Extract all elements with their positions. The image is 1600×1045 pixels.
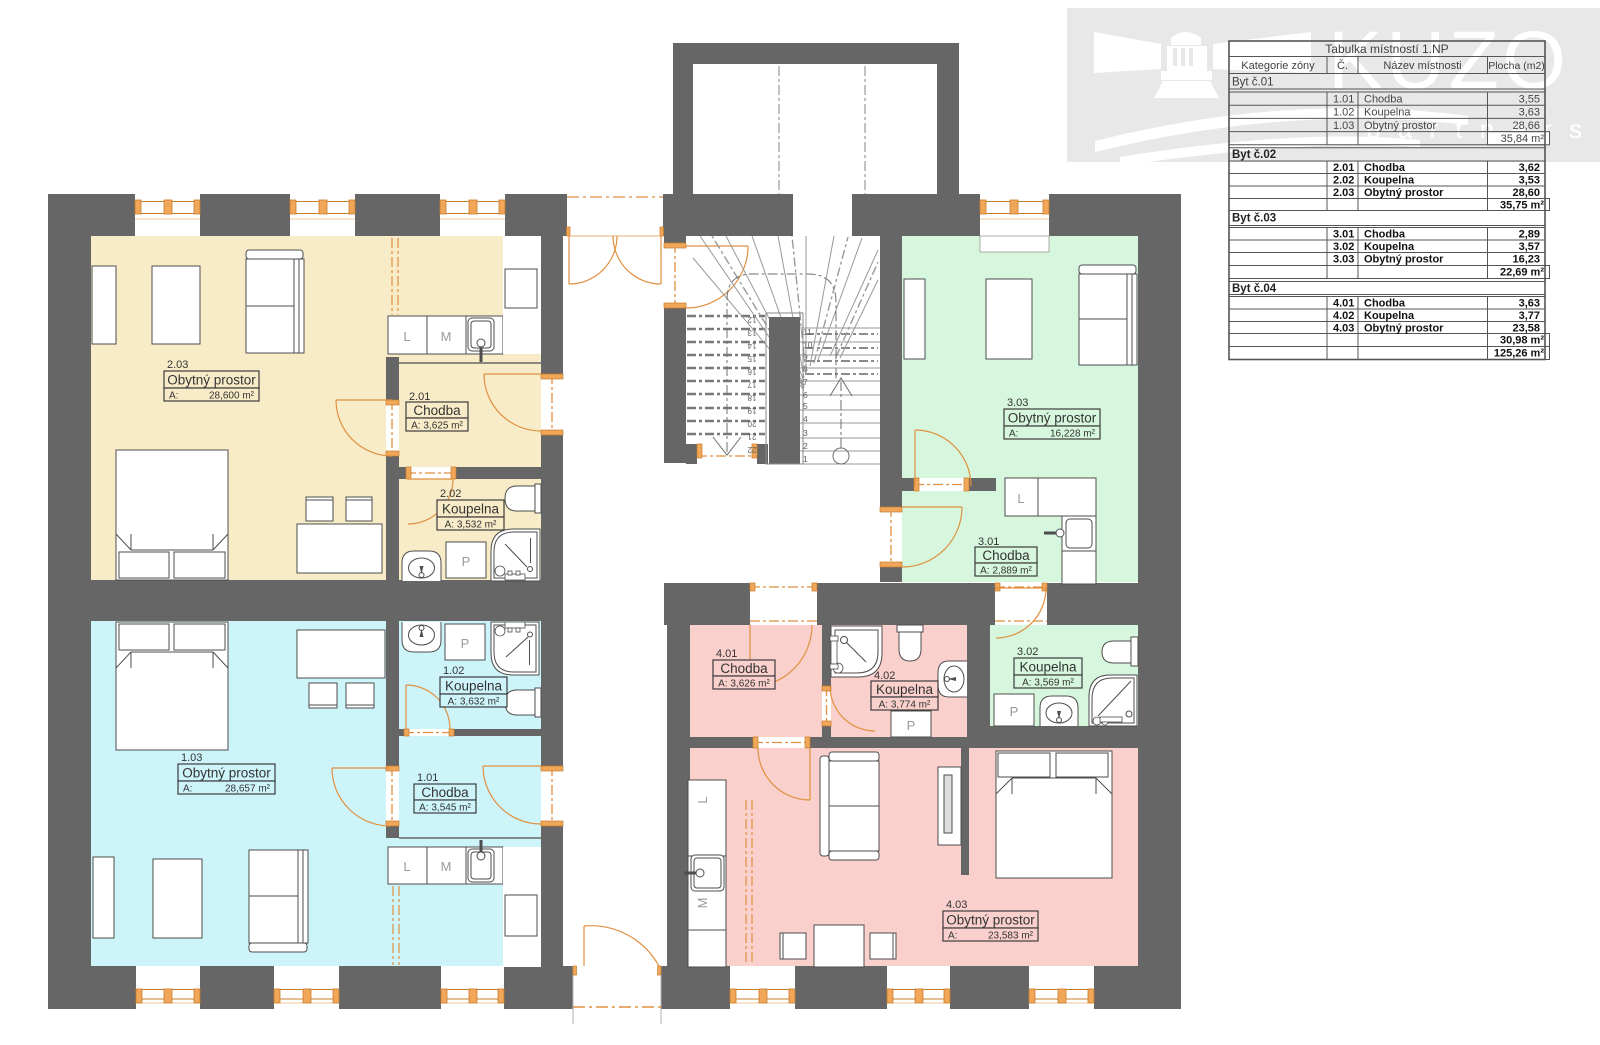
svg-text:Byt č.03: Byt č.03 <box>1232 213 1276 225</box>
svg-text:M: M <box>695 898 710 909</box>
svg-text:2,89: 2,89 <box>1519 229 1540 241</box>
svg-text:3,63: 3,63 <box>1519 107 1540 119</box>
svg-text:Koupelna: Koupelna <box>1364 175 1415 187</box>
svg-text:3.02: 3.02 <box>1017 646 1038 658</box>
svg-text:23,58: 23,58 <box>1512 323 1540 335</box>
svg-text:Chodba: Chodba <box>421 785 469 800</box>
svg-text:Č.: Č. <box>1337 59 1348 72</box>
svg-text:14: 14 <box>747 341 756 350</box>
svg-text:22: 22 <box>747 445 756 454</box>
svg-text:1.01: 1.01 <box>417 772 438 784</box>
svg-text:Kategorie zóny: Kategorie zóny <box>1241 60 1315 72</box>
svg-text:A:: A: <box>183 784 192 795</box>
svg-text:21: 21 <box>747 432 756 441</box>
svg-text:Tabulka místností 1.NP: Tabulka místností 1.NP <box>1325 42 1448 56</box>
svg-text:15: 15 <box>747 354 756 363</box>
svg-text:Byt č.01: Byt č.01 <box>1232 77 1274 89</box>
svg-text:3,77: 3,77 <box>1519 310 1540 322</box>
svg-text:Obytný prostor: Obytný prostor <box>1008 411 1097 426</box>
svg-text:20: 20 <box>747 419 756 428</box>
svg-text:A: 3,626 m²: A: 3,626 m² <box>718 679 770 690</box>
svg-text:3.02: 3.02 <box>1333 241 1354 253</box>
svg-text:L: L <box>695 796 710 803</box>
svg-text:Obytný prostor: Obytný prostor <box>1364 323 1444 335</box>
svg-text:3.03: 3.03 <box>1007 397 1028 409</box>
svg-text:A: 3,569 m²: A: 3,569 m² <box>1022 678 1074 689</box>
svg-text:Koupelna: Koupelna <box>1364 241 1415 253</box>
svg-text:4.02: 4.02 <box>874 670 895 682</box>
svg-text:1.03: 1.03 <box>1333 120 1354 132</box>
svg-text:11: 11 <box>803 327 812 337</box>
svg-text:4.03: 4.03 <box>946 899 967 911</box>
svg-text:28,66: 28,66 <box>1512 120 1540 132</box>
svg-text:1.01: 1.01 <box>1333 94 1354 106</box>
svg-text:19: 19 <box>747 406 756 415</box>
svg-text:L: L <box>1017 491 1024 506</box>
svg-text:Chodba: Chodba <box>720 661 768 676</box>
svg-text:Plocha (m2): Plocha (m2) <box>1488 60 1545 72</box>
svg-text:3.03: 3.03 <box>1333 254 1354 266</box>
svg-text:Koupelna: Koupelna <box>442 502 500 517</box>
svg-text:Koupelna: Koupelna <box>445 679 503 694</box>
svg-text:Chodba: Chodba <box>1364 298 1406 310</box>
svg-text:Obytný prostor: Obytný prostor <box>182 766 271 781</box>
svg-text:4: 4 <box>803 414 808 424</box>
svg-text:1: 1 <box>803 454 808 464</box>
svg-text:4.01: 4.01 <box>1333 298 1354 310</box>
svg-text:16: 16 <box>747 367 756 376</box>
svg-text:23,583 m²: 23,583 m² <box>988 931 1034 942</box>
svg-text:L: L <box>403 329 410 344</box>
svg-text:16,23: 16,23 <box>1512 254 1540 266</box>
svg-text:L: L <box>403 859 410 874</box>
svg-text:3,55: 3,55 <box>1519 94 1540 106</box>
svg-text:3,53: 3,53 <box>1519 175 1540 187</box>
svg-text:P: P <box>907 718 916 733</box>
svg-text:Chodba: Chodba <box>982 548 1030 563</box>
svg-text:Obytný prostor: Obytný prostor <box>946 913 1035 928</box>
svg-text:M: M <box>441 329 452 344</box>
svg-text:28,600 m²: 28,600 m² <box>209 391 255 402</box>
svg-text:Koupelna: Koupelna <box>1364 310 1415 322</box>
svg-text:A: 3,632 m²: A: 3,632 m² <box>448 697 500 708</box>
svg-text:Název místnosti: Název místnosti <box>1383 60 1461 72</box>
svg-text:Chodba: Chodba <box>1364 162 1406 174</box>
svg-text:M: M <box>441 859 452 874</box>
svg-text:4.02: 4.02 <box>1333 310 1354 322</box>
svg-text:Obytný prostor: Obytný prostor <box>1364 254 1444 266</box>
svg-text:22,69 m²: 22,69 m² <box>1500 267 1544 279</box>
svg-text:2.02: 2.02 <box>1333 175 1354 187</box>
svg-text:Obytný prostor: Obytný prostor <box>1364 187 1444 199</box>
svg-text:3,62: 3,62 <box>1519 162 1540 174</box>
svg-text:A: 3,532 m²: A: 3,532 m² <box>445 520 497 531</box>
svg-text:3.01: 3.01 <box>978 536 999 548</box>
svg-text:2.03: 2.03 <box>167 359 188 371</box>
svg-text:30,98 m²: 30,98 m² <box>1500 335 1544 347</box>
svg-text:Koupelna: Koupelna <box>876 682 934 697</box>
svg-text:P: P <box>462 554 471 569</box>
svg-text:3,63: 3,63 <box>1519 298 1540 310</box>
svg-text:28,60: 28,60 <box>1512 187 1540 199</box>
svg-text:A: 2,889 m²: A: 2,889 m² <box>980 566 1032 577</box>
svg-text:17: 17 <box>747 380 756 389</box>
svg-text:4.01: 4.01 <box>716 648 737 660</box>
svg-text:2.02: 2.02 <box>440 488 461 500</box>
svg-text:28,657 m²: 28,657 m² <box>225 784 271 795</box>
svg-text:6: 6 <box>803 390 808 400</box>
svg-text:2.01: 2.01 <box>409 391 430 403</box>
svg-text:1.03: 1.03 <box>181 752 202 764</box>
svg-text:2.01: 2.01 <box>1333 162 1354 174</box>
svg-text:A: 3,774 m²: A: 3,774 m² <box>879 700 931 711</box>
svg-text:Chodba: Chodba <box>1364 94 1403 106</box>
svg-text:A:: A: <box>169 391 178 402</box>
svg-text:A: 3,625 m²: A: 3,625 m² <box>411 421 463 432</box>
svg-text:125,26 m²: 125,26 m² <box>1494 348 1544 360</box>
svg-text:18: 18 <box>747 393 756 402</box>
svg-text:1.02: 1.02 <box>1333 107 1354 119</box>
svg-text:2: 2 <box>803 441 808 451</box>
svg-text:5: 5 <box>803 401 808 411</box>
svg-text:35,75 m²: 35,75 m² <box>1500 200 1544 212</box>
svg-text:3: 3 <box>803 428 808 438</box>
svg-text:Koupelna: Koupelna <box>1019 660 1077 675</box>
svg-text:P: P <box>461 636 470 651</box>
svg-text:A:: A: <box>948 931 957 942</box>
svg-text:3,57: 3,57 <box>1519 241 1540 253</box>
svg-text:P: P <box>1010 704 1019 719</box>
svg-text:A: 3,545 m²: A: 3,545 m² <box>419 803 471 814</box>
svg-text:Koupelna: Koupelna <box>1364 107 1411 119</box>
svg-text:16,228 m²: 16,228 m² <box>1050 429 1096 440</box>
svg-text:10: 10 <box>803 340 813 350</box>
svg-text:Obytný prostor: Obytný prostor <box>1364 120 1436 132</box>
svg-text:Obytný prostor: Obytný prostor <box>167 373 256 388</box>
svg-text:Chodba: Chodba <box>1364 229 1406 241</box>
svg-text:Chodba: Chodba <box>413 403 461 418</box>
svg-text:4.03: 4.03 <box>1333 323 1354 335</box>
svg-text:Byt č.04: Byt č.04 <box>1232 283 1277 295</box>
svg-text:1.02: 1.02 <box>443 665 464 677</box>
svg-text:A:: A: <box>1009 429 1018 440</box>
svg-text:Byt č.02: Byt č.02 <box>1232 149 1276 161</box>
svg-text:3.01: 3.01 <box>1333 229 1354 241</box>
svg-text:35,84 m²: 35,84 m² <box>1501 133 1545 145</box>
svg-text:2.03: 2.03 <box>1333 187 1354 199</box>
